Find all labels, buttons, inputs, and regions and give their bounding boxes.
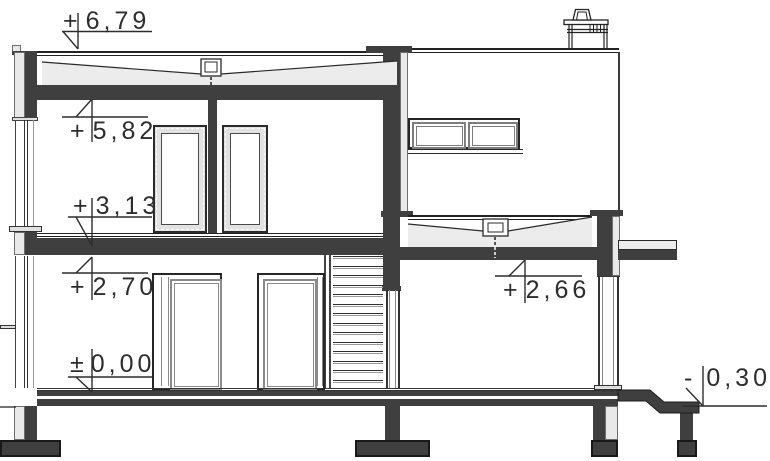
level-sign: + (63, 9, 82, 34)
window-band-sill (404, 149, 523, 154)
ground-window-2-glass (267, 283, 314, 387)
annex-right-wall-core (597, 216, 612, 276)
foundation-annex-insulation (605, 406, 618, 440)
rear-volume-roofline (412, 48, 619, 53)
window-band-pane-left (412, 122, 466, 149)
level-sign: ± (70, 352, 88, 377)
ground-window-1-mullion-a (161, 277, 162, 386)
terrace-pier (680, 413, 693, 440)
ground-window-1-sash (170, 279, 222, 390)
center-wall-insulation (400, 52, 408, 214)
level-value: 5,82 (93, 119, 158, 144)
stair-tread (333, 332, 383, 335)
annex-roof-insulation (408, 217, 592, 247)
roof-slope-line-left (42, 62, 201, 74)
footing-center (355, 440, 430, 457)
center-glazing-line-a (386, 290, 388, 388)
stair-tread (333, 304, 383, 307)
level-marker-upper-floor: + 3,13 (73, 194, 160, 219)
level-value: 6,79 (86, 9, 151, 34)
foundation-annex-core (593, 406, 605, 440)
terrace-slab (618, 390, 699, 413)
center-glazing-line-c (395, 290, 396, 388)
left-glazing-upper-glass-a (24, 120, 25, 228)
ground-floor-slab (37, 399, 618, 406)
roof-membrane (37, 51, 397, 56)
ground-window-1-mullion-b (168, 277, 169, 386)
stair-tread (333, 380, 383, 383)
left-glazing-lower-glass-b (27, 256, 28, 388)
upper-partition-wall (208, 100, 217, 233)
level-sign: - (684, 366, 696, 391)
upper-door-1 (153, 125, 207, 233)
left-glazing-upper-inner-line (33, 120, 34, 228)
stair-tread (333, 351, 383, 354)
level-marker-ground-floor: ± 0,00 (70, 352, 155, 377)
canopy-deck (618, 240, 677, 250)
upper-door-1-leaf (161, 133, 199, 225)
left-glazing-lower-glass-a (24, 256, 25, 388)
stair-tread (333, 256, 383, 259)
window-band-pane-right (468, 122, 518, 149)
level-sign: + (70, 275, 89, 300)
center-glazing-line-d (398, 290, 400, 388)
level-value: 0,30 (706, 366, 770, 391)
stair-tread (333, 323, 383, 326)
level-sign: + (503, 278, 522, 303)
ground-window-2-sash (263, 279, 317, 390)
stair-tread (333, 275, 383, 278)
chimney-icon (564, 10, 608, 51)
footing-annex (591, 440, 618, 457)
stair-tread (333, 313, 383, 316)
roof-drain-inner (205, 62, 217, 72)
roof-drain (201, 59, 221, 76)
level-marker-upper-ceiling: + 5,82 (70, 119, 157, 144)
foundation-left-insulation (14, 406, 25, 440)
annex-door-frame-a (598, 277, 600, 389)
annex-roof-drain-inner (488, 223, 503, 232)
annex-door-threshold (594, 385, 622, 390)
left-glazing-lower-line (15, 256, 16, 388)
window-band-pane-right-glass (472, 126, 515, 146)
annex-roof-slab (398, 247, 612, 260)
stair-tread (333, 266, 383, 269)
level-sign: + (73, 194, 92, 219)
ground-window-2-mullion-b (322, 277, 323, 386)
foundation-left-core (25, 406, 37, 440)
canopy-slab (618, 250, 677, 260)
stair-tread (333, 361, 383, 364)
level-value: 2,66 (526, 278, 591, 303)
cross-section-drawing: + 6,79 + 5,82 + 3,13 + 2,70 + 2,66 ± 0,0… (0, 0, 770, 461)
annex-door-glass-a (602, 277, 603, 389)
stair-tread (333, 370, 383, 373)
ground-window-2-mullion-a (317, 277, 318, 386)
center-glazing-line-b (389, 290, 390, 388)
level-marker-exterior-grade: - 0,30 (684, 366, 770, 391)
window-band (408, 118, 520, 149)
annex-door-frame-b (617, 277, 619, 389)
left-wall-insulation-mid (14, 232, 25, 255)
annex-slope-line-left (408, 224, 483, 231)
window-band-pane-left-glass (416, 126, 463, 146)
ground-floor-screed (37, 391, 618, 396)
window-band-mullion (465, 122, 466, 145)
left-glazing-upper-line (15, 120, 16, 228)
ground-window-1-glass (174, 283, 219, 387)
rear-volume-right-edge (618, 52, 620, 212)
roof-slope-line-right (221, 61, 397, 74)
roof-insulation (42, 61, 397, 85)
level-marker-ground-ceiling: + 2,70 (70, 275, 157, 300)
stair-tread (333, 294, 383, 297)
annex-roof-drain (483, 219, 508, 236)
annex-roof-membrane (408, 215, 592, 220)
upper-floor-finish-line (37, 233, 383, 237)
level-value: 3,13 (96, 194, 161, 219)
stair-tread (333, 342, 383, 345)
ground-window-2 (257, 273, 325, 390)
left-glazing-lower-inner-line (33, 256, 34, 388)
level-marker-annex-ceiling: + 2,66 (503, 278, 590, 303)
level-value: 2,70 (93, 275, 158, 300)
foundation-center-pier (385, 406, 400, 440)
left-exterior-sill (0, 325, 16, 329)
roof-slab (36, 85, 400, 100)
upper-floor-slab (36, 238, 400, 255)
upper-door-2 (222, 125, 268, 233)
left-glazing-upper-glass-b (27, 120, 28, 228)
ground-window-1 (152, 273, 222, 390)
annex-door-glass-b (613, 277, 614, 389)
footing-terrace (677, 440, 697, 457)
footing-left (0, 440, 61, 457)
level-marker-roof-top: + 6,79 (63, 9, 150, 34)
upper-door-2-leaf (230, 133, 260, 225)
left-wall-core-top (25, 52, 37, 118)
stairwell-wall-line-b (329, 255, 331, 388)
level-sign: + (70, 119, 89, 144)
stair-tread (333, 285, 383, 288)
annex-door (597, 276, 620, 388)
level-value: 0,00 (91, 352, 156, 377)
left-wall-insulation-top (14, 52, 25, 118)
